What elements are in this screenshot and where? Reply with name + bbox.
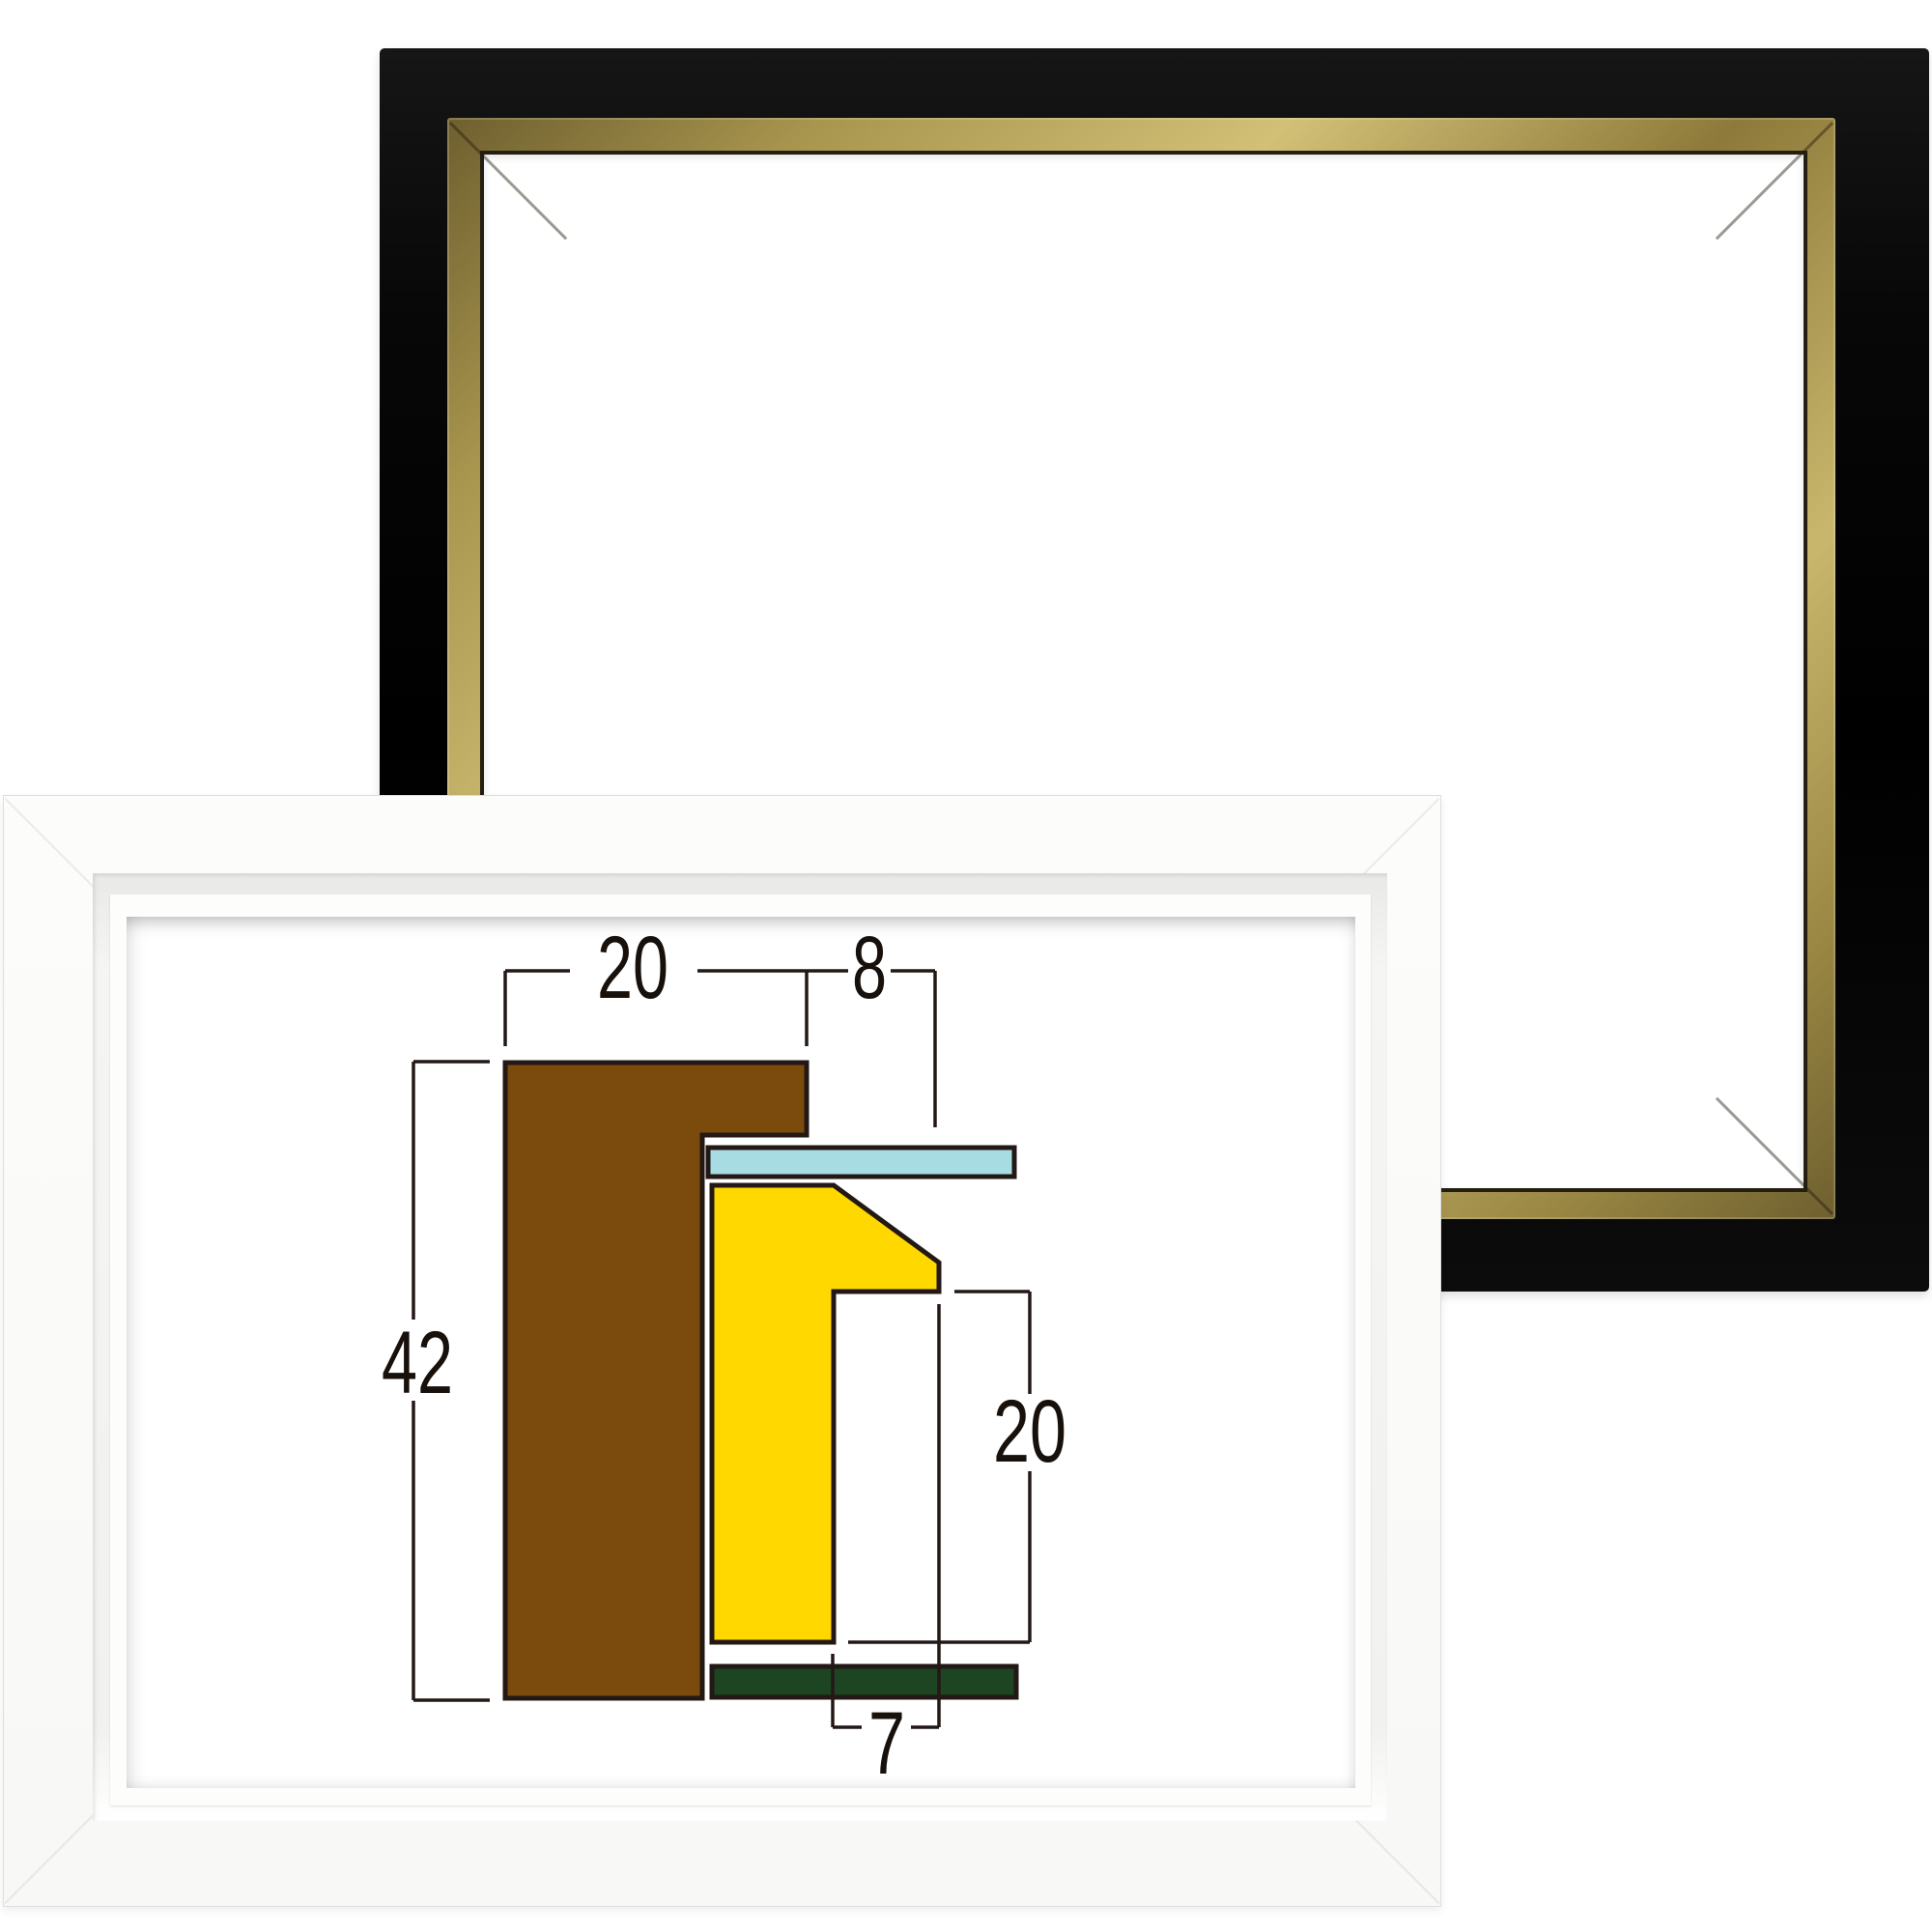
product-photo: 20 8 42 20 7 bbox=[0, 0, 1932, 1932]
profile-backboard-strip bbox=[712, 1666, 1016, 1697]
dim-label-rabbet-height: 20 bbox=[993, 1382, 1066, 1481]
profile-glass-strip bbox=[708, 1148, 1014, 1177]
dim-label-height: 42 bbox=[382, 1314, 453, 1412]
dim-label-rabbet-width: 7 bbox=[868, 1694, 905, 1793]
profile-yellow-liner bbox=[712, 1185, 939, 1642]
dim-label-top-width: 20 bbox=[597, 919, 668, 1017]
dimension-lines-bottom bbox=[833, 1304, 939, 1727]
dim-label-top-overhang: 8 bbox=[852, 919, 887, 1017]
profile-diagram: 20 8 42 20 7 bbox=[0, 0, 1932, 1932]
